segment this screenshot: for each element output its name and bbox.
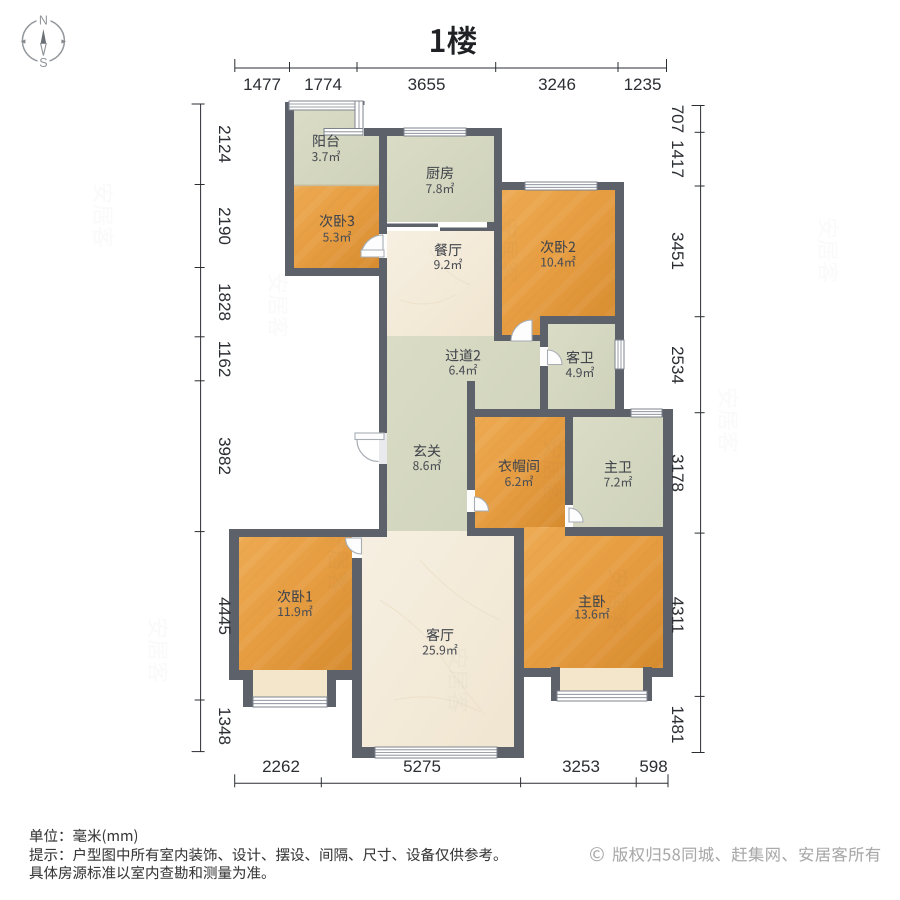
svg-text:598: 598	[639, 757, 667, 776]
svg-text:4445: 4445	[215, 597, 234, 635]
svg-text:1481: 1481	[668, 706, 687, 744]
svg-text:1162: 1162	[215, 341, 234, 378]
svg-text:707: 707	[668, 105, 687, 133]
svg-text:1235: 1235	[624, 75, 662, 94]
svg-text:N: N	[39, 14, 48, 28]
svg-text:3178: 3178	[668, 454, 687, 492]
svg-text:2534: 2534	[668, 346, 687, 384]
svg-text:3253: 3253	[562, 757, 600, 776]
svg-text:1828: 1828	[215, 283, 234, 321]
svg-text:5275: 5275	[403, 757, 441, 776]
svg-text:2190: 2190	[215, 207, 234, 245]
svg-text:2262: 2262	[262, 757, 300, 776]
svg-text:3982: 3982	[215, 437, 234, 475]
svg-text:1774: 1774	[304, 75, 342, 94]
svg-text:1477: 1477	[243, 75, 281, 94]
svg-text:2124: 2124	[215, 125, 234, 163]
svg-text:4311: 4311	[668, 597, 687, 634]
svg-text:3655: 3655	[408, 75, 446, 94]
svg-text:1417: 1417	[668, 140, 687, 178]
svg-text:1348: 1348	[215, 707, 234, 745]
svg-text:S: S	[39, 56, 47, 70]
svg-text:3246: 3246	[538, 75, 576, 94]
svg-text:3451: 3451	[668, 232, 687, 270]
